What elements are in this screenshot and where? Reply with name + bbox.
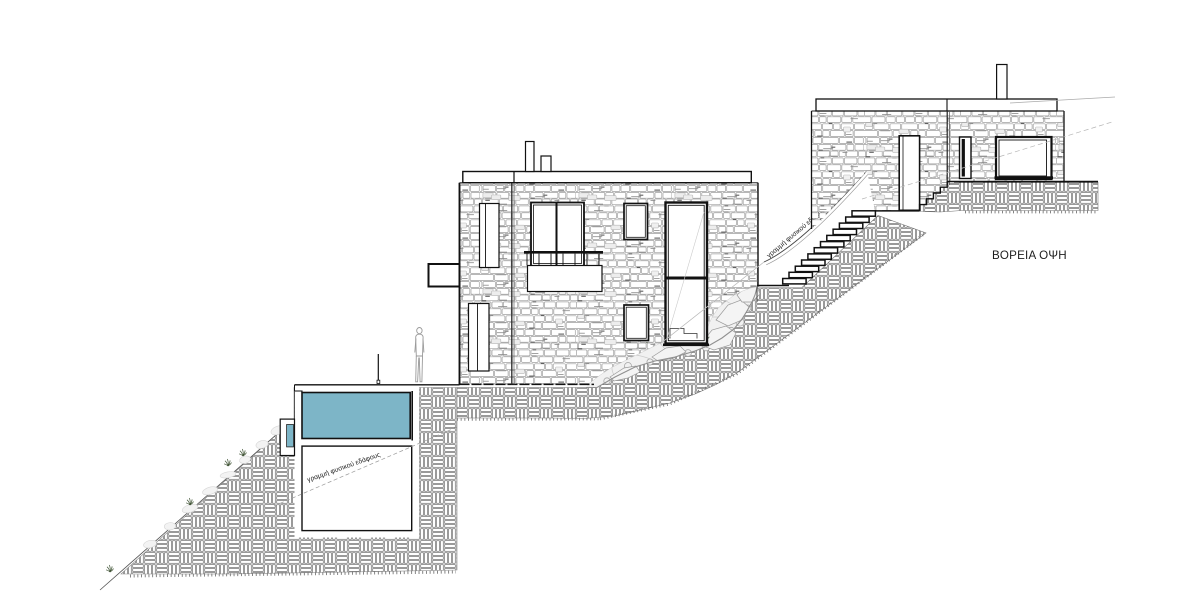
svg-text:ΒΟΡΕΙΑ ΟΨΗ: ΒΟΡΕΙΑ ΟΨΗ: [992, 249, 1067, 262]
